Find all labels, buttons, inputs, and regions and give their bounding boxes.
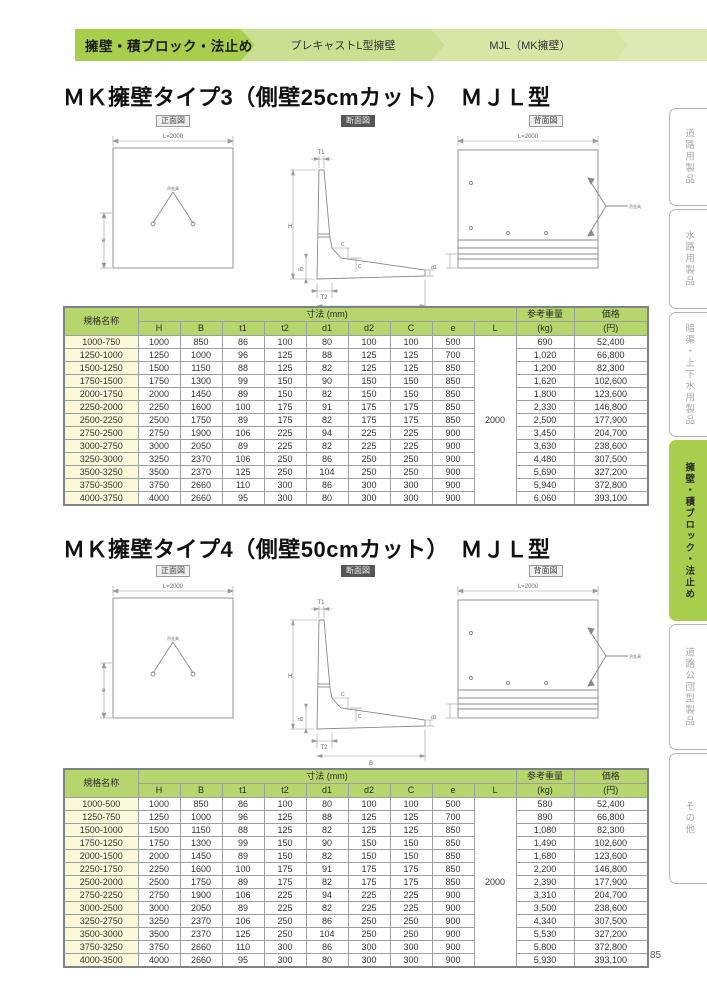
cell-B: 2660 [180,492,222,506]
cell-B: 1750 [180,876,222,889]
front-dim-L: L=2000 [163,134,184,140]
cell-t1: 95 [222,954,264,968]
sidebar-tab-label: 水路用製品 [684,230,694,288]
sidebar-tab-label: 擁壁・積ブロック・法止め [684,462,694,600]
cell-t1: 106 [222,427,264,440]
cell-d1: 80 [306,492,348,506]
cell-e: 900 [432,915,474,928]
table-row: 1500-12501500115088125821251258501,20082… [64,362,648,375]
cell-C: 125 [390,824,432,837]
cell-B: 2370 [180,453,222,466]
table-row: 4000-37504000266095300803003009006,06039… [64,492,648,506]
back-view-figure: 背面図 L=2000 [438,115,653,288]
cell-H: 1500 [138,824,180,837]
cell-t2: 300 [264,492,306,506]
dim-B: B [369,761,373,767]
cell-H: 3750 [138,941,180,954]
cell-t1: 106 [222,915,264,928]
cell-d2: 125 [348,349,390,362]
cell-H: 2000 [138,388,180,401]
cell-d2: 150 [348,375,390,388]
col-header-d1: d1 [306,784,348,798]
cell-name: 3750-3250 [64,941,138,954]
cell-d2: 125 [348,811,390,824]
back-view-drawing: L=2000 吊金具 [438,578,653,738]
cell-t1: 99 [222,837,264,850]
cell-d1: 86 [306,941,348,954]
cell-B: 2370 [180,915,222,928]
table-row: 2250-175022501600100175911751758502,2001… [64,863,648,876]
cell-H: 2750 [138,889,180,902]
cell-price: 177,900 [574,876,648,889]
cell-weight: 2,330 [516,401,574,414]
table-row: 3000-25003000205089225822252259003,50023… [64,902,648,915]
cell-d1: 82 [306,388,348,401]
section-view-figure: 断面図 [278,565,438,770]
cell-C: 250 [390,928,432,941]
dim-d2: d2 [298,717,304,723]
cell-weight: 2,200 [516,863,574,876]
dim-C2: C [358,264,362,270]
back-dim-L: L=2000 [518,584,539,590]
cell-name: 3000-2500 [64,902,138,915]
cell-t2: 150 [264,388,306,401]
cell-e: 900 [432,453,474,466]
cell-H: 2500 [138,414,180,427]
cell-name: 3000-2750 [64,440,138,453]
cell-d2: 225 [348,427,390,440]
sidebar-tab-road-products: 道路用製品 [669,108,707,206]
cell-weight: 2,500 [516,414,574,427]
cell-H: 1250 [138,811,180,824]
dim-T1: T1 [317,150,325,156]
cell-t2: 250 [264,928,306,941]
cell-C: 175 [390,414,432,427]
cell-name: 1250-750 [64,811,138,824]
cell-weight: 4,340 [516,915,574,928]
cell-d1: 94 [306,427,348,440]
cell-e: 700 [432,349,474,362]
page-number: 85 [650,950,661,961]
cell-price: 102,600 [574,375,648,388]
catalog-page: 擁壁・積ブロック・法止め プレキャストL型擁壁 MJL（MK擁壁） ＭＫ擁壁タイ… [0,0,707,1000]
cell-C: 225 [390,440,432,453]
cell-t2: 250 [264,453,306,466]
cell-price: 327,200 [574,928,648,941]
cell-t1: 89 [222,902,264,915]
cell-price: 307,500 [574,915,648,928]
cell-price: 52,400 [574,798,648,811]
col-header-t2: t2 [264,784,306,798]
cell-t2: 300 [264,954,306,968]
cell-t1: 110 [222,941,264,954]
cell-weight: 3,630 [516,440,574,453]
cell-t1: 106 [222,889,264,902]
cell-H: 1000 [138,336,180,349]
cell-price: 66,800 [574,811,648,824]
table-row: 3750-325037502660110300863003009005,8003… [64,941,648,954]
cell-t1: 89 [222,414,264,427]
cell-t2: 225 [264,889,306,902]
cell-price: 82,300 [574,824,648,837]
cell-name: 1750-1250 [64,837,138,850]
col-header-name: 規格名称 [64,769,138,798]
sidebar-tab-retaining-wall-active: 擁壁・積ブロック・法止め [669,440,707,621]
cell-C: 175 [390,863,432,876]
cell-e: 500 [432,798,474,811]
cell-price: 82,300 [574,362,648,375]
cell-t1: 99 [222,375,264,388]
section2-drawings: 正面図 L=2000 e 吊金具 断面図 [63,565,663,760]
sidebar-tab-waterway-products: 水路用製品 [669,209,707,309]
col-header-weight: 参考重量 [516,307,574,322]
cell-d1: 90 [306,375,348,388]
table-row: 1000-75010008508610080100100500200069052… [64,336,648,349]
cell-e: 850 [432,837,474,850]
dim-C1: C [341,242,345,248]
cell-C: 300 [390,941,432,954]
cell-weight: 5,800 [516,941,574,954]
cell-weight: 1,490 [516,837,574,850]
cell-C: 150 [390,388,432,401]
front-dim-e: e [102,688,106,694]
dim-C2: C [358,714,362,720]
table-row: 1250-75012501000961258812512570089066,80… [64,811,648,824]
cell-e: 850 [432,414,474,427]
cell-e: 900 [432,902,474,915]
cell-d2: 150 [348,850,390,863]
cell-t1: 89 [222,850,264,863]
cell-C: 125 [390,811,432,824]
front-view-label: 正面図 [156,565,190,577]
cell-price: 327,200 [574,466,648,479]
dim-H: H [288,674,292,680]
col-header-d2: d2 [348,322,390,336]
cell-t2: 175 [264,401,306,414]
cell-d1: 88 [306,811,348,824]
cell-H: 3250 [138,915,180,928]
cell-d2: 250 [348,453,390,466]
cell-H: 2250 [138,863,180,876]
section-view-label: 断面図 [341,565,375,577]
cell-e: 850 [432,401,474,414]
breadcrumb-item-subcategory: プレキャストL型擁壁 [241,29,445,61]
cell-H: 1250 [138,349,180,362]
cell-weight: 4,480 [516,453,574,466]
cell-L-merged: 2000 [474,798,516,968]
cell-name: 3250-3000 [64,453,138,466]
front-view-label: 正面図 [156,115,190,127]
cell-t1: 96 [222,349,264,362]
cell-price: 146,800 [574,863,648,876]
cell-B: 1900 [180,427,222,440]
cell-e: 900 [432,466,474,479]
cell-price: 372,800 [574,479,648,492]
cell-name: 1000-750 [64,336,138,349]
cell-t2: 175 [264,414,306,427]
dim-T2: T2 [320,295,328,301]
cell-e: 850 [432,863,474,876]
cell-t2: 125 [264,362,306,375]
cell-weight: 1,620 [516,375,574,388]
sidebar-tab-label: 道路用製品 [684,128,694,186]
col-header-t2: t2 [264,322,306,336]
cell-weight: 580 [516,798,574,811]
cell-price: 372,800 [574,941,648,954]
section-view-drawing: T1 H d2 T2 B C C d1 [278,128,438,320]
cell-t2: 125 [264,824,306,837]
cell-B: 1000 [180,811,222,824]
col-header-dims: 寸法 (mm) [138,769,516,784]
cell-d2: 175 [348,863,390,876]
cell-d2: 225 [348,440,390,453]
cell-price: 393,100 [574,954,648,968]
cell-t1: 88 [222,824,264,837]
cell-B: 1600 [180,863,222,876]
cell-H: 2250 [138,401,180,414]
cell-d2: 175 [348,414,390,427]
cell-d1: 80 [306,798,348,811]
cell-weight: 1,680 [516,850,574,863]
cell-C: 250 [390,466,432,479]
breadcrumb-item-product: MJL（MK擁壁） [431,29,629,61]
cell-name: 1500-1000 [64,824,138,837]
cell-d2: 175 [348,401,390,414]
cell-H: 3500 [138,466,180,479]
cell-t1: 89 [222,388,264,401]
cell-H: 4000 [138,492,180,506]
cell-t2: 225 [264,440,306,453]
cell-price: 204,700 [574,427,648,440]
cell-d2: 125 [348,362,390,375]
cell-B: 2660 [180,954,222,968]
spec-table-type3: 規格名称 寸法 (mm) 参考重量 価格 H B t1 t2 d1 d2 C e… [63,306,649,506]
cell-t1: 110 [222,479,264,492]
cell-name: 1000-500 [64,798,138,811]
cell-C: 225 [390,427,432,440]
cell-price: 307,500 [574,453,648,466]
dim-d1: d1 [431,715,437,721]
cell-t2: 125 [264,349,306,362]
cell-H: 2750 [138,427,180,440]
cell-B: 1300 [180,375,222,388]
table-row: 3250-300032502370106250862502509004,4803… [64,453,648,466]
col-header-L: L [474,322,516,336]
table-row: 4000-35004000266095300803003009005,93039… [64,954,648,968]
cell-weight: 2,390 [516,876,574,889]
table-row: 3500-3000350023701252501042502509005,530… [64,928,648,941]
cell-d1: 94 [306,889,348,902]
cell-e: 850 [432,824,474,837]
cell-price: 123,600 [574,850,648,863]
sidebar-tab-label: 道路公団型製品 [684,647,694,728]
cell-B: 1150 [180,824,222,837]
cell-H: 3750 [138,479,180,492]
cell-e: 900 [432,479,474,492]
section-view-drawing: T1 H d2 T2 B C C d1 [278,578,438,770]
cell-e: 850 [432,876,474,889]
breadcrumb: 擁壁・積ブロック・法止め プレキャストL型擁壁 MJL（MK擁壁） [75,29,707,61]
cell-d1: 82 [306,850,348,863]
cell-B: 2370 [180,928,222,941]
cell-t2: 225 [264,427,306,440]
cell-d1: 82 [306,440,348,453]
col-header-B: B [180,322,222,336]
cell-name: 1500-1250 [64,362,138,375]
col-header-d1: d1 [306,322,348,336]
cell-d1: 82 [306,362,348,375]
table-row: 1250-10001250100096125881251257001,02066… [64,349,648,362]
cell-e: 850 [432,362,474,375]
col-header-C: C [390,322,432,336]
cell-t2: 225 [264,902,306,915]
cell-price: 238,600 [574,902,648,915]
cell-d2: 175 [348,876,390,889]
cell-e: 700 [432,811,474,824]
table-row: 1750-15001750130099150901501508501,62010… [64,375,648,388]
front-view-drawing: L=2000 e 吊金具 [98,128,248,288]
col-header-price-unit: (円) [574,784,648,798]
cell-C: 125 [390,349,432,362]
cell-price: 177,900 [574,414,648,427]
cell-e: 900 [432,440,474,453]
cell-C: 150 [390,375,432,388]
cell-t2: 100 [264,798,306,811]
cell-name: 4000-3750 [64,492,138,506]
cell-weight: 690 [516,336,574,349]
dim-d2: d2 [298,267,304,273]
cell-C: 300 [390,492,432,506]
cell-t2: 150 [264,850,306,863]
cell-t1: 96 [222,811,264,824]
cell-e: 900 [432,928,474,941]
cell-d2: 150 [348,837,390,850]
back-dim-L: L=2000 [518,134,539,140]
cell-price: 102,600 [574,837,648,850]
cell-name: 3250-2750 [64,915,138,928]
front-view-figure: 正面図 L=2000 e 吊金具 [98,115,248,288]
cell-d1: 86 [306,453,348,466]
table-row: 1000-50010008508610080100100500200058052… [64,798,648,811]
cell-name: 2250-2000 [64,401,138,414]
col-header-L: L [474,784,516,798]
cell-weight: 1,080 [516,824,574,837]
cell-B: 2660 [180,941,222,954]
cell-d2: 300 [348,954,390,968]
cell-B: 2050 [180,440,222,453]
cell-d1: 88 [306,349,348,362]
cell-e: 900 [432,941,474,954]
front-dim-L: L=2000 [163,584,184,590]
cell-d2: 250 [348,928,390,941]
cell-t2: 250 [264,915,306,928]
back-view-label: 背面図 [529,115,563,127]
cell-H: 4000 [138,954,180,968]
section1-drawings: 正面図 L=2000 e 吊金具 断面図 [63,115,663,310]
breadcrumb-label: プレキャストL型擁壁 [290,37,395,53]
cell-B: 1450 [180,388,222,401]
sidebar-tab-label: その他 [684,801,694,836]
cell-C: 250 [390,453,432,466]
table-row: 2500-20002500175089175821751758502,39017… [64,876,648,889]
dim-d1: d1 [431,265,437,271]
table-row: 3750-350037502660110300863003009005,9403… [64,479,648,492]
cell-weight: 5,930 [516,954,574,968]
cell-L-merged: 2000 [474,336,516,506]
cell-weight: 5,530 [516,928,574,941]
cell-t2: 150 [264,837,306,850]
cell-t2: 250 [264,466,306,479]
cell-B: 1450 [180,850,222,863]
cell-weight: 1,200 [516,362,574,375]
cell-weight: 3,450 [516,427,574,440]
front-view-figure: 正面図 L=2000 e 吊金具 [98,565,248,738]
cell-e: 900 [432,427,474,440]
cell-d1: 104 [306,466,348,479]
cell-name: 2000-1750 [64,388,138,401]
back-anchor-label: 吊金具 [629,653,641,659]
cell-d2: 225 [348,889,390,902]
breadcrumb-label: 擁壁・積ブロック・法止め [85,35,253,55]
cell-d1: 86 [306,479,348,492]
cell-name: 1250-1000 [64,349,138,362]
col-header-dims: 寸法 (mm) [138,307,516,322]
col-header-t1: t1 [222,322,264,336]
cell-t2: 125 [264,811,306,824]
cell-e: 500 [432,336,474,349]
cell-C: 100 [390,336,432,349]
cell-d1: 82 [306,902,348,915]
col-header-e: e [432,322,474,336]
cell-t2: 175 [264,863,306,876]
cell-H: 3500 [138,928,180,941]
cell-name: 2250-1750 [64,863,138,876]
cell-price: 66,800 [574,349,648,362]
cell-d2: 300 [348,492,390,506]
cell-price: 204,700 [574,889,648,902]
table-row: 2000-15002000145089150821501508501,68012… [64,850,648,863]
cell-H: 1000 [138,798,180,811]
breadcrumb-label: MJL（MK擁壁） [489,37,570,53]
col-header-e: e [432,784,474,798]
cell-C: 100 [390,798,432,811]
cell-d1: 82 [306,876,348,889]
cell-e: 900 [432,889,474,902]
sidebar-tab-others: その他 [669,753,707,884]
cell-B: 1900 [180,889,222,902]
table-row: 3250-275032502370106250862502509004,3403… [64,915,648,928]
cell-d1: 82 [306,824,348,837]
cell-B: 850 [180,336,222,349]
table-row: 2750-250027501900106225942252259003,4502… [64,427,648,440]
cell-H: 3000 [138,902,180,915]
cell-e: 850 [432,850,474,863]
table-row: 1500-10001500115088125821251258501,08082… [64,824,648,837]
cell-name: 2500-2250 [64,414,138,427]
col-header-weight-unit: (kg) [516,322,574,336]
cell-name: 3500-3000 [64,928,138,941]
cell-C: 250 [390,915,432,928]
col-header-d2: d2 [348,784,390,798]
section1-title: ＭＫ擁壁タイプ3（側壁25cmカット） ＭＪＬ型 [63,80,551,112]
cell-B: 1750 [180,414,222,427]
cell-price: 123,600 [574,388,648,401]
cell-C: 150 [390,837,432,850]
table-row: 1750-12501750130099150901501508501,49010… [64,837,648,850]
cell-d1: 80 [306,954,348,968]
cell-t2: 100 [264,336,306,349]
cell-d1: 104 [306,928,348,941]
